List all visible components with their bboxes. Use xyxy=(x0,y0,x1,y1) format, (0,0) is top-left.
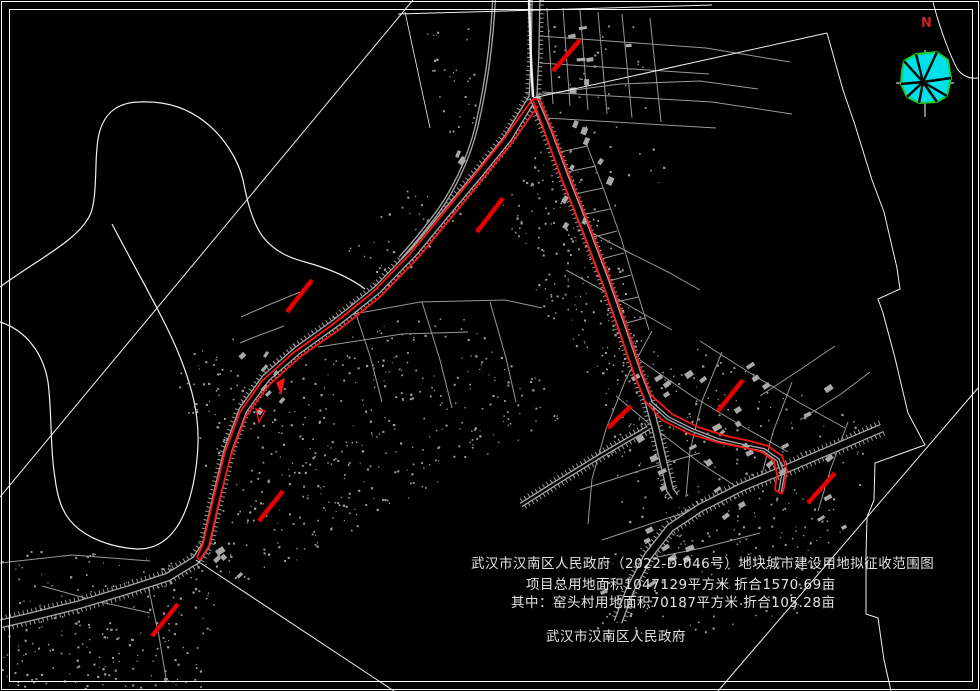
village-area-text: 其中：窑头村用地面积70187平方米 折合105.28亩 xyxy=(511,593,835,613)
total-area-text: 项目总用地面积1047129平方米 折合1570.69亩 xyxy=(526,575,836,595)
cad-map-window: N 武汉市汉南区人民政府（2022-D-046号）地块城市建设用地拟征收范围图 … xyxy=(0,0,980,691)
north-label: N xyxy=(921,16,932,31)
map-title: 武汉市汉南区人民政府（2022-D-046号）地块城市建设用地拟征收范围图 xyxy=(471,554,934,574)
acquisition-boundary xyxy=(152,40,835,636)
government-signature: 武汉市汉南区人民政府 xyxy=(546,627,686,647)
road-network xyxy=(0,0,882,624)
compass-north-icon: N xyxy=(896,16,954,117)
